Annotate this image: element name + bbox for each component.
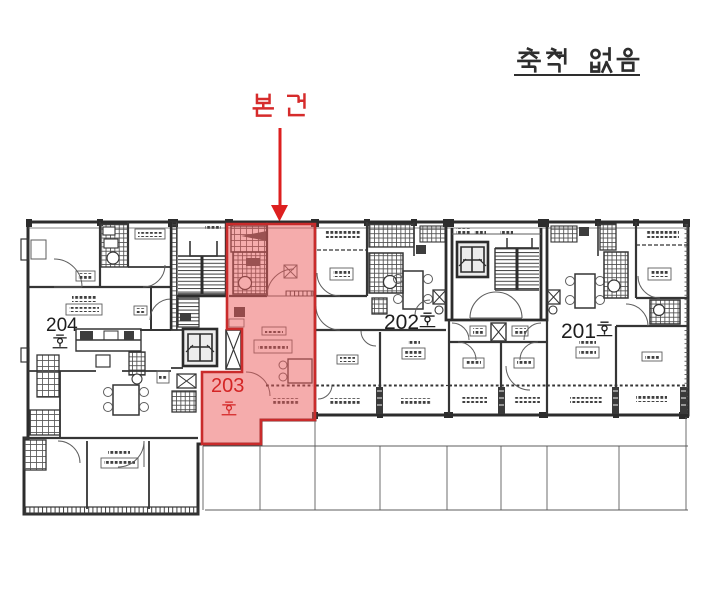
svg-text:202: 202: [384, 311, 419, 334]
svg-text:203: 203: [211, 375, 244, 397]
svg-text:201: 201: [561, 320, 596, 343]
svg-text:204: 204: [46, 315, 78, 336]
